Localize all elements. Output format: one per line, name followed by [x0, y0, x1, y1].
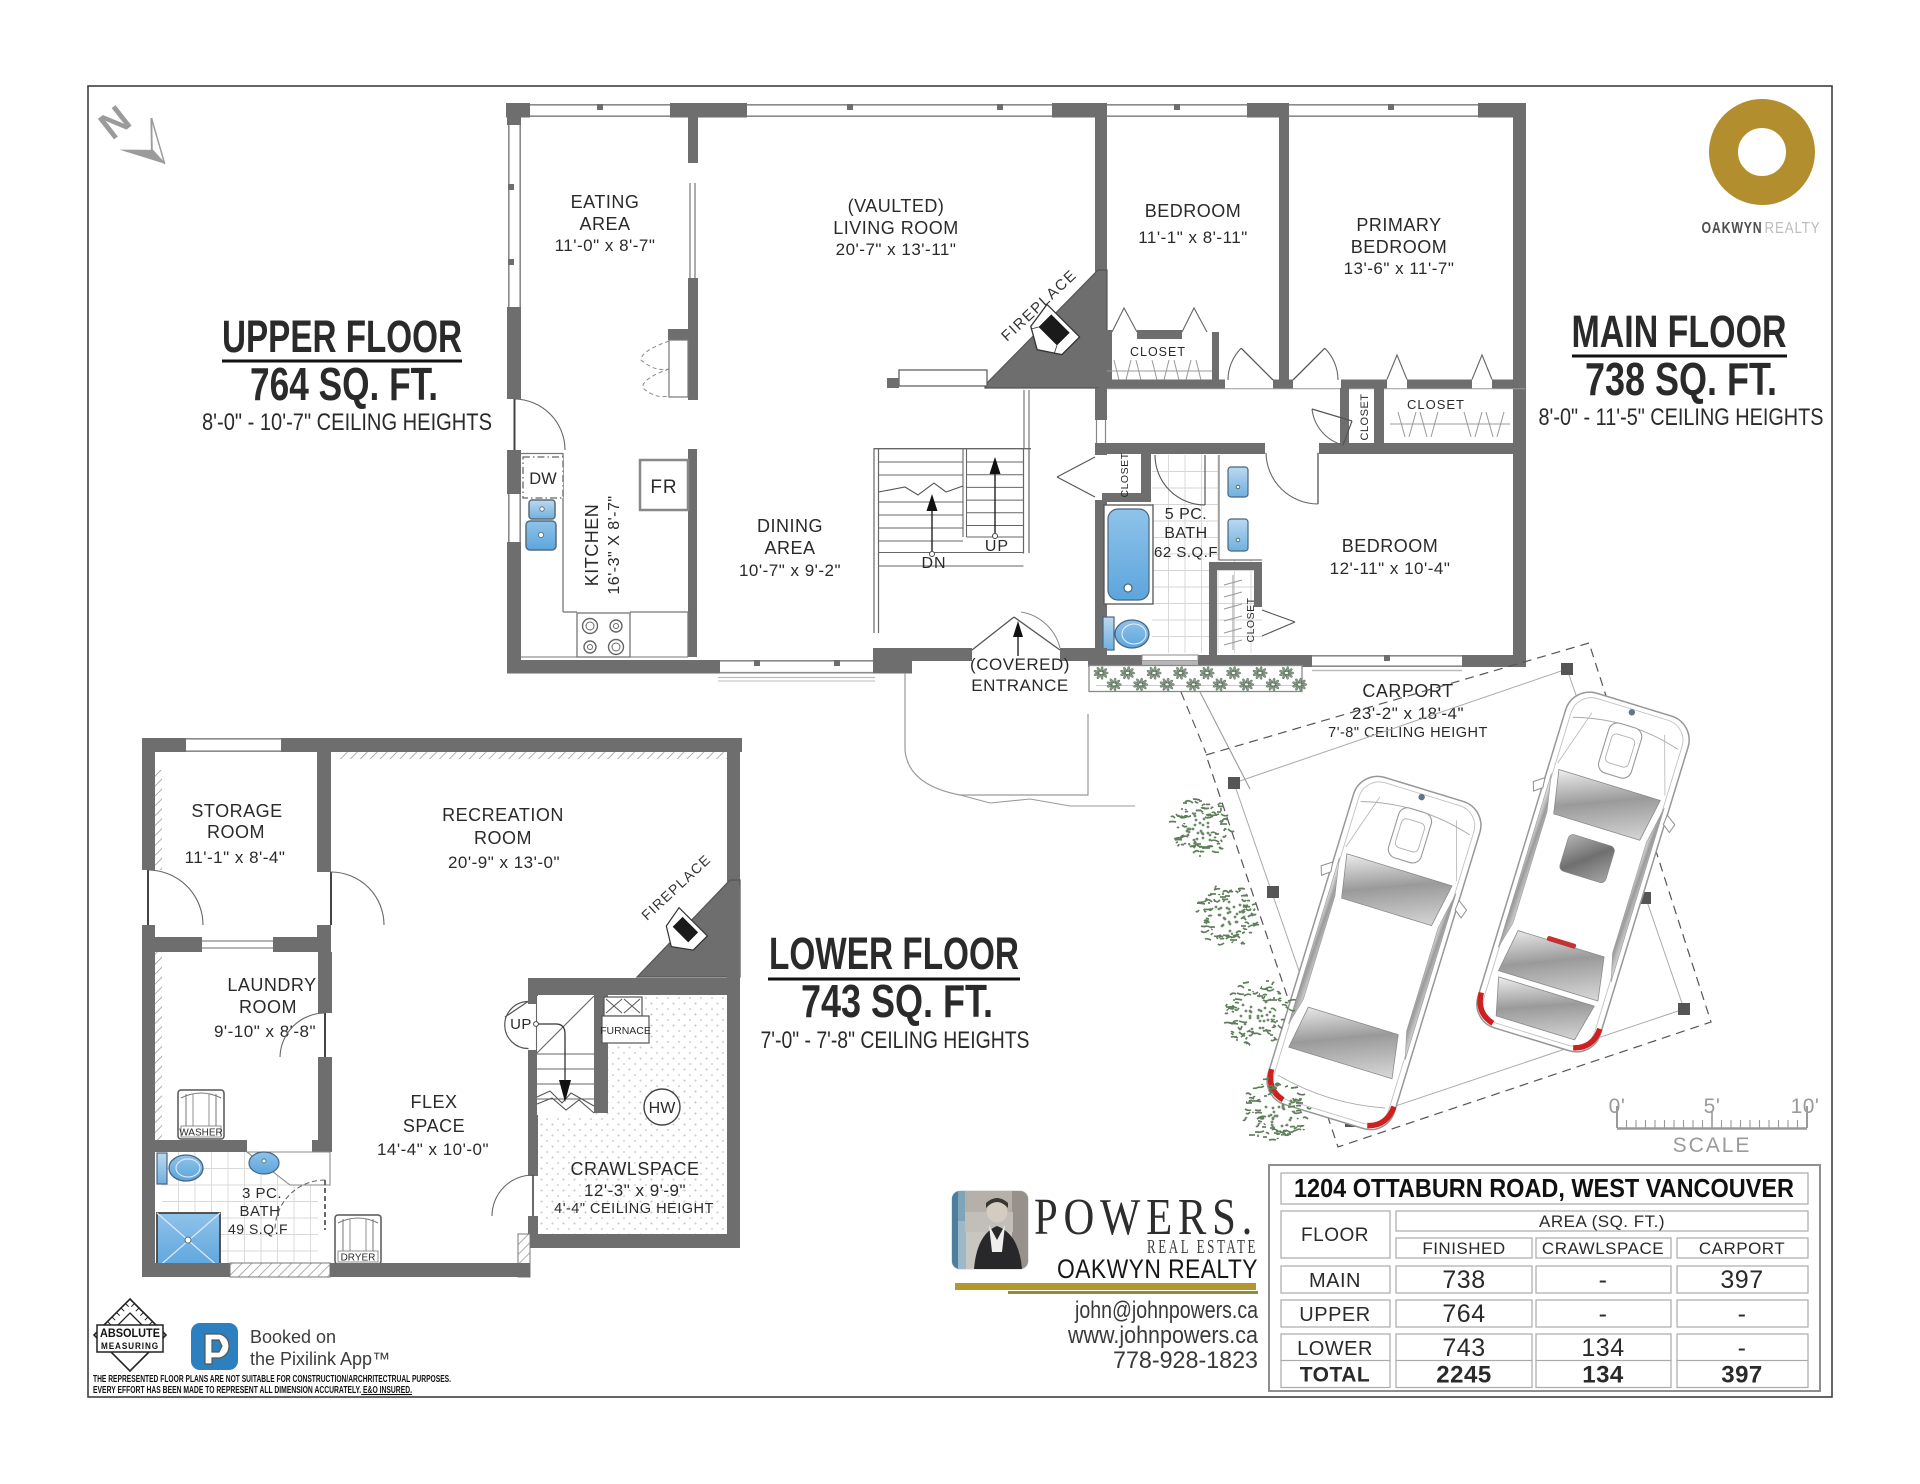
svg-text:UP: UP — [985, 538, 1009, 555]
svg-text:BATH: BATH — [1164, 525, 1207, 542]
svg-text:11'-1" x 8'-4": 11'-1" x 8'-4" — [185, 848, 286, 867]
svg-text:134: 134 — [1582, 1362, 1624, 1389]
svg-text:FINISHED: FINISHED — [1422, 1239, 1505, 1258]
svg-text:4'-4" CEILING HEIGHT: 4'-4" CEILING HEIGHT — [554, 1201, 714, 1217]
svg-text:738 SQ. FT.: 738 SQ. FT. — [1585, 353, 1777, 405]
svg-text:PRIMARY: PRIMARY — [1356, 215, 1441, 235]
svg-text:-: - — [1599, 1266, 1608, 1294]
svg-text:134: 134 — [1581, 1334, 1624, 1362]
svg-text:DINING: DINING — [757, 516, 823, 536]
svg-text:5 PC.: 5 PC. — [1165, 506, 1208, 523]
svg-text:OAKWYN REALTY: OAKWYN REALTY — [1057, 1254, 1258, 1284]
svg-text:Booked on: Booked on — [250, 1327, 336, 1347]
svg-text:OAKWYN: OAKWYN — [1702, 220, 1763, 237]
svg-text:WASHER: WASHER — [179, 1128, 223, 1139]
svg-text:UP: UP — [510, 1016, 532, 1033]
svg-text:MEASURING: MEASURING — [101, 1341, 159, 1351]
svg-text:397: 397 — [1721, 1362, 1763, 1389]
svg-text:20'-9" x 13'-0": 20'-9" x 13'-0" — [448, 853, 560, 872]
svg-text:EVERY EFFORT HAS BEEN MADE TO: EVERY EFFORT HAS BEEN MADE TO REPRESENT … — [93, 1384, 412, 1396]
svg-text:ABSOLUTE: ABSOLUTE — [100, 1326, 160, 1340]
svg-text:764: 764 — [1442, 1300, 1485, 1328]
svg-text:-: - — [1738, 1300, 1747, 1328]
svg-text:DRYER: DRYER — [341, 1253, 376, 1264]
svg-text:BEDROOM: BEDROOM — [1342, 536, 1439, 556]
svg-text:AREA: AREA — [579, 214, 630, 234]
svg-text:BATH: BATH — [240, 1203, 281, 1220]
svg-text:(COVERED): (COVERED) — [970, 655, 1070, 674]
svg-text:49 S.Q.F: 49 S.Q.F — [228, 1221, 288, 1237]
svg-text:STORAGE: STORAGE — [191, 801, 282, 821]
svg-text:LAUNDRY: LAUNDRY — [227, 975, 316, 995]
svg-text:LIVING ROOM: LIVING ROOM — [833, 218, 959, 238]
svg-text:CRAWLSPACE: CRAWLSPACE — [1542, 1239, 1664, 1258]
svg-text:ROOM: ROOM — [474, 828, 532, 848]
svg-text:UPPER FLOOR: UPPER FLOOR — [222, 311, 462, 362]
svg-text:CRAWLSPACE: CRAWLSPACE — [570, 1159, 699, 1179]
svg-text:CLOSET: CLOSET — [1119, 452, 1131, 497]
svg-text:TOTAL: TOTAL — [1300, 1364, 1371, 1387]
svg-text:RECREATION: RECREATION — [442, 805, 564, 825]
svg-text:743 SQ. FT.: 743 SQ. FT. — [801, 975, 993, 1027]
svg-text:3 PC.: 3 PC. — [242, 1185, 282, 1202]
svg-text:CLOSET: CLOSET — [1359, 393, 1371, 440]
svg-text:FLOOR: FLOOR — [1301, 1225, 1369, 1246]
svg-text:743: 743 — [1442, 1334, 1485, 1362]
svg-text:CARPORT: CARPORT — [1699, 1239, 1785, 1258]
svg-text:BEDROOM: BEDROOM — [1351, 237, 1448, 257]
svg-text:UPPER: UPPER — [1299, 1304, 1370, 1326]
svg-text:CLOSET: CLOSET — [1130, 345, 1186, 359]
svg-text:20'-7" x 13'-11": 20'-7" x 13'-11" — [836, 240, 957, 259]
svg-text:738: 738 — [1442, 1266, 1485, 1294]
svg-text:-: - — [1738, 1334, 1747, 1362]
svg-text:9'-10" x 8'-8": 9'-10" x 8'-8" — [214, 1022, 316, 1041]
svg-text:(VAULTED): (VAULTED) — [848, 196, 945, 216]
svg-text:REALTY: REALTY — [1765, 220, 1821, 237]
svg-text:the Pixilink App™: the Pixilink App™ — [250, 1349, 390, 1369]
svg-text:HW: HW — [649, 1100, 677, 1117]
svg-text:11'-0" x 8'-7": 11'-0" x 8'-7" — [555, 236, 656, 255]
svg-text:EATING: EATING — [571, 192, 640, 212]
svg-text:MAIN FLOOR: MAIN FLOOR — [1572, 306, 1787, 357]
svg-text:11'-1" x 8'-11": 11'-1" x 8'-11" — [1138, 228, 1248, 247]
svg-text:7'-0" - 7'-8" CEILING HEIGHTS: 7'-0" - 7'-8" CEILING HEIGHTS — [761, 1027, 1030, 1054]
svg-text:ENTRANCE: ENTRANCE — [971, 676, 1069, 695]
svg-text:764 SQ. FT.: 764 SQ. FT. — [250, 358, 438, 410]
svg-text:FR: FR — [650, 477, 677, 498]
svg-text:www.johnpowers.ca: www.johnpowers.ca — [1067, 1322, 1258, 1349]
svg-text:LOWER: LOWER — [1297, 1338, 1373, 1360]
svg-text:LOWER FLOOR: LOWER FLOOR — [769, 928, 1019, 979]
svg-text:DN: DN — [921, 555, 946, 572]
svg-text:CARPORT: CARPORT — [1362, 681, 1453, 701]
svg-text:12'-11" x 10'-4": 12'-11" x 10'-4" — [1330, 559, 1451, 578]
svg-text:SCALE: SCALE — [1673, 1134, 1752, 1157]
svg-text:16'-3" X 8'-7": 16'-3" X 8'-7" — [606, 495, 623, 594]
svg-text:SPACE: SPACE — [403, 1116, 465, 1136]
svg-text:1204 OTTABURN ROAD, WEST VANCO: 1204 OTTABURN ROAD, WEST VANCOUVER — [1294, 1173, 1794, 1203]
svg-text:778-928-1823: 778-928-1823 — [1113, 1347, 1258, 1374]
svg-text:62 S.Q.F: 62 S.Q.F — [1154, 544, 1218, 561]
svg-text:10'-7" x 9'-2": 10'-7" x 9'-2" — [739, 561, 841, 580]
svg-text:BEDROOM: BEDROOM — [1145, 201, 1242, 221]
svg-text:14'-4" x 10'-0": 14'-4" x 10'-0" — [377, 1140, 489, 1159]
svg-text:CLOSET: CLOSET — [1407, 397, 1465, 412]
svg-text:-: - — [1599, 1300, 1608, 1328]
svg-text:13'-6" x 11'-7": 13'-6" x 11'-7" — [1344, 259, 1455, 278]
svg-text:MAIN: MAIN — [1309, 1270, 1361, 1292]
svg-text:10': 10' — [1791, 1095, 1820, 1118]
svg-text:8'-0" - 10'-7" CEILING HEIGHTS: 8'-0" - 10'-7" CEILING HEIGHTS — [202, 409, 492, 436]
svg-text:CLOSET: CLOSET — [1245, 597, 1257, 642]
svg-text:FURNACE: FURNACE — [600, 1025, 651, 1037]
svg-text:7'-8" CEILING HEIGHT: 7'-8" CEILING HEIGHT — [1328, 725, 1488, 741]
svg-text:2245: 2245 — [1436, 1362, 1491, 1389]
svg-text:AREA: AREA — [764, 538, 815, 558]
svg-text:12'-3" x 9'-9": 12'-3" x 9'-9" — [584, 1181, 686, 1200]
svg-text:DW: DW — [529, 470, 557, 488]
svg-text:john@johnpowers.ca: john@johnpowers.ca — [1074, 1297, 1258, 1324]
svg-text:397: 397 — [1720, 1266, 1763, 1294]
svg-text:8'-0" - 11'-5" CEILING HEIGHTS: 8'-0" - 11'-5" CEILING HEIGHTS — [1539, 404, 1824, 431]
svg-text:ROOM: ROOM — [207, 822, 265, 842]
svg-text:KITCHEN: KITCHEN — [582, 504, 602, 587]
svg-text:AREA (SQ. FT.): AREA (SQ. FT.) — [1539, 1212, 1665, 1231]
svg-text:FLEX: FLEX — [410, 1092, 457, 1112]
svg-text:ROOM: ROOM — [239, 997, 297, 1017]
